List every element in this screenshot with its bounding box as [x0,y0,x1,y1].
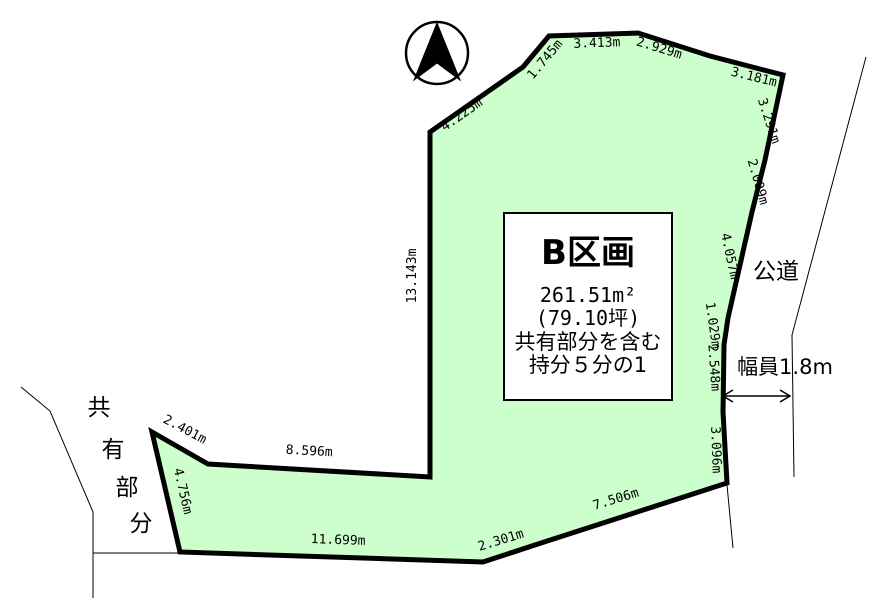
measurement-label: 8.596m [285,443,333,460]
road-label: 公道 [753,259,799,285]
svg-text:有: 有 [102,437,125,463]
parcel-area-tsubo: (79.10坪) [536,306,640,330]
parcel-title: B区画 [541,233,635,273]
site-plan-svg: 4.225m 1.745m 3.413m 2.929m 3.181m 3.291… [0,0,891,606]
measurement-label: 3.413m [573,35,621,52]
road-width-label: 幅員1.8m [737,355,833,379]
svg-text:部: 部 [116,475,139,501]
shared-area-boundary-line [21,387,93,598]
road-boundary-line [792,57,866,477]
measurement-label: 11.699m [310,532,365,549]
svg-text:共: 共 [88,395,111,421]
parcel-info-box: B区画 261.51m² (79.10坪) 共有部分を含む 持分５分の1 [504,213,672,400]
north-compass-icon [406,22,468,84]
measurement-label: 3.096m [707,426,724,474]
shared-area-label: 共 有 部 分 [88,395,153,537]
svg-text:分: 分 [130,511,153,537]
parcel-note-shared: 共有部分を含む [515,330,662,354]
parcel-area-m2: 261.51m² [540,283,636,307]
measurement-label: 13.143m [405,248,420,303]
land-plot-diagram: 4.225m 1.745m 3.413m 2.929m 3.181m 3.291… [0,0,891,606]
parcel-note-share-ratio: 持分５分の1 [529,353,647,377]
boundary-stub-line [727,485,733,548]
road-width-arrow [723,390,790,402]
